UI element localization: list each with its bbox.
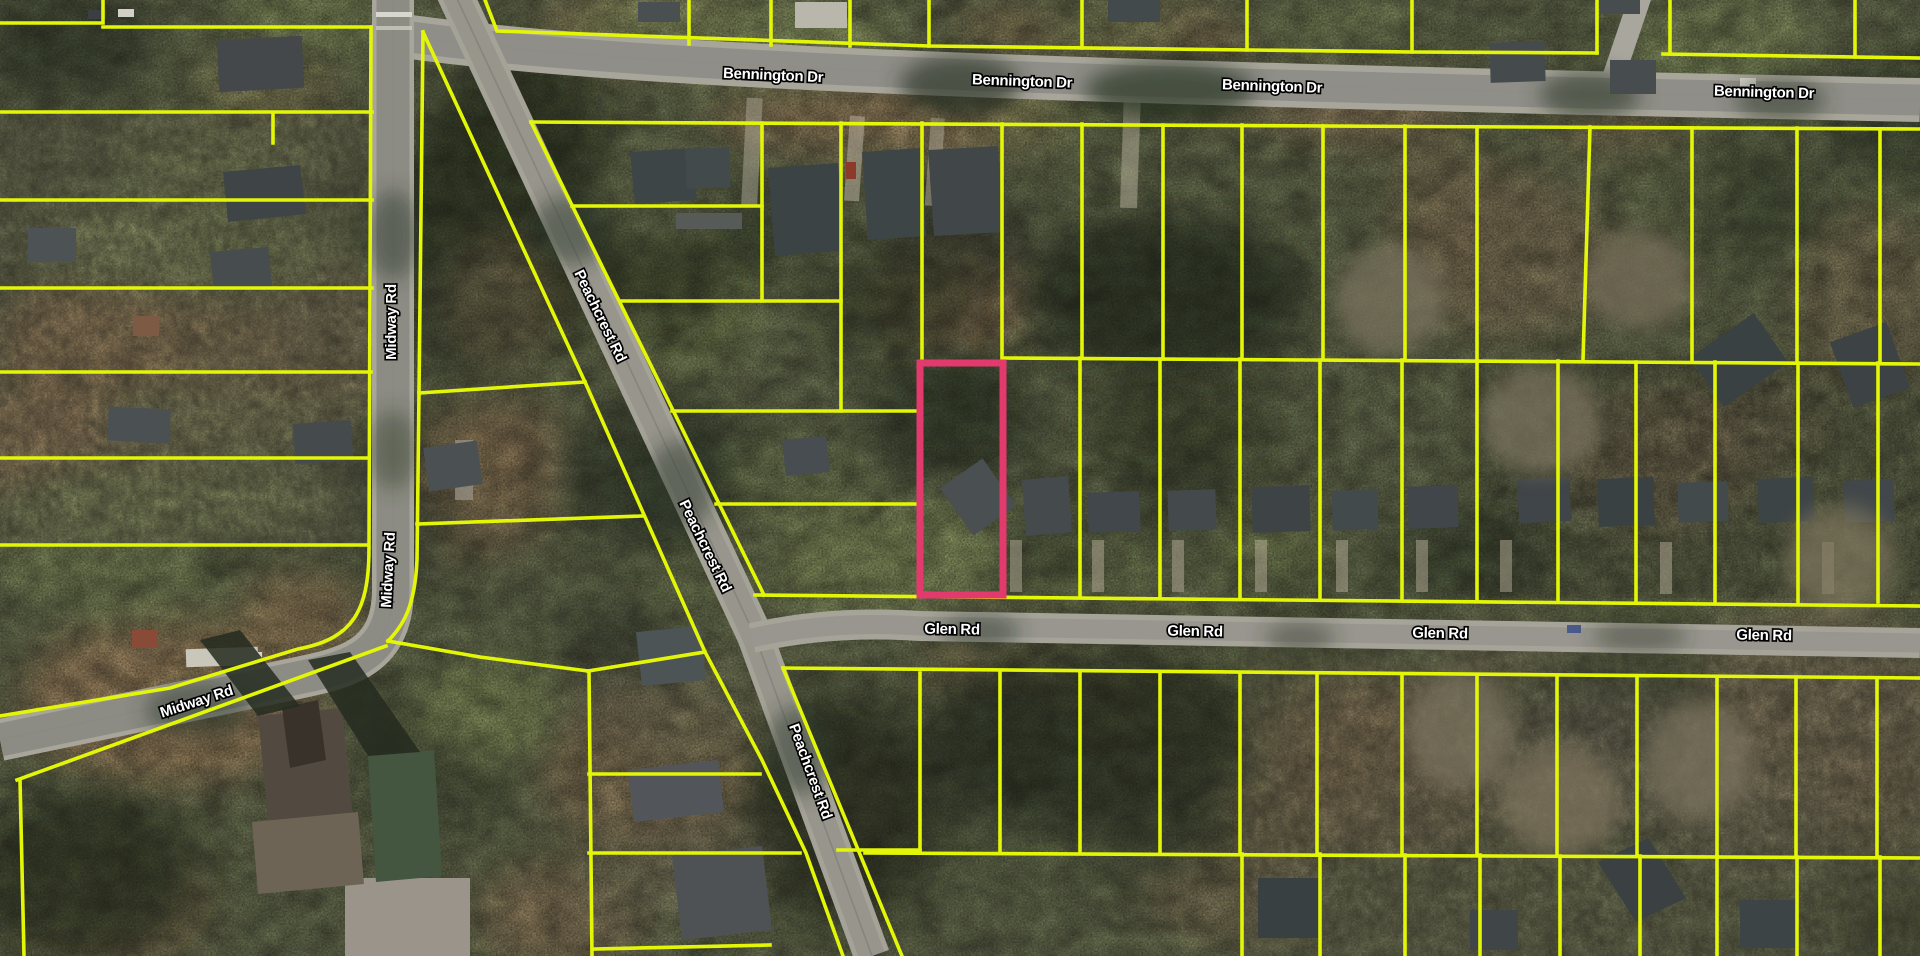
svg-text:Bennington Dr: Bennington Dr <box>972 71 1073 92</box>
svg-text:Glen Rd: Glen Rd <box>924 621 980 639</box>
svg-text:Glen Rd: Glen Rd <box>1412 625 1468 643</box>
svg-text:Glen Rd: Glen Rd <box>1167 623 1223 641</box>
svg-text:Bennington Dr: Bennington Dr <box>1714 83 1815 103</box>
svg-text:Bennington Dr: Bennington Dr <box>1222 76 1323 97</box>
svg-text:Midway Rd: Midway Rd <box>383 284 400 360</box>
svg-text:Glen Rd: Glen Rd <box>1736 627 1792 645</box>
